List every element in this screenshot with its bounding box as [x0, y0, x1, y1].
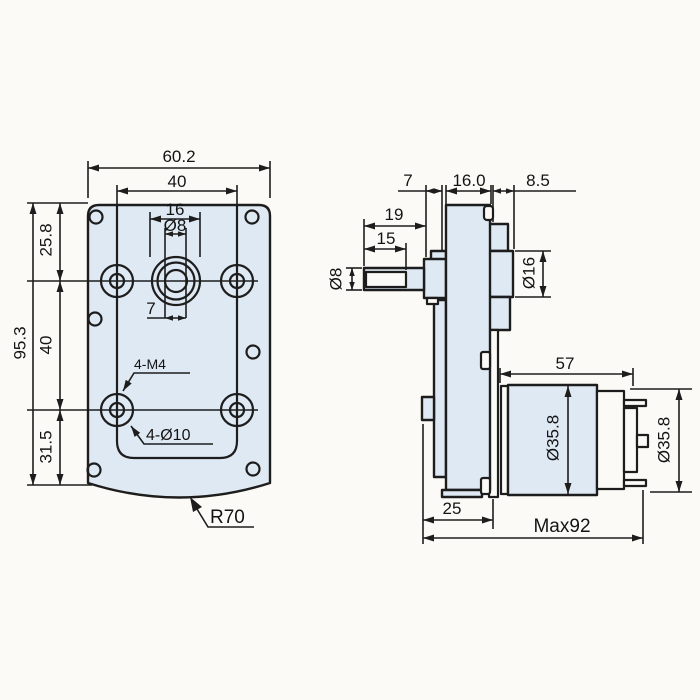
dim-side-base-label: 25 [443, 499, 462, 518]
dim-front-height: 95.3 [10, 203, 33, 485]
label-through-holes-text: 4-Ø10 [146, 427, 191, 444]
side-view: 7 16.0 8.5 19 15 Ø [326, 171, 692, 544]
dim-side-motor-len-label: 57 [556, 354, 575, 373]
rear-step-2 [489, 297, 510, 330]
front-cover-strip [434, 300, 446, 477]
motor-rear-bump [637, 435, 648, 447]
label-bottom-radius: R70 [190, 497, 254, 528]
dim-side-collar-label: 7 [403, 171, 412, 190]
top-tab [484, 206, 493, 220]
dim-front-shaft-dia-label: Ø8 [164, 216, 187, 235]
motor-end-cap [597, 391, 624, 489]
front-plate-outline [88, 205, 270, 498]
dim-side-shaft-len-label: 19 [385, 205, 404, 224]
dim-front-mid-span: 40 [36, 281, 60, 410]
clip-top [481, 352, 490, 369]
gear-motor-drawing: 60.2 40 16 Ø8 7 25.8 [0, 0, 700, 700]
label-tapped-holes-text: 4-M4 [134, 356, 166, 372]
motor-terminal-top [624, 400, 646, 406]
dim-front-width-label: 60.2 [162, 147, 195, 166]
dim-side-motor-dia-label: Ø35.8 [543, 415, 562, 461]
radius-arrow [190, 497, 202, 512]
dim-side-shaft-dia-label: Ø8 [326, 268, 345, 291]
dim-front-bottom-offset: 31.5 [36, 410, 60, 485]
clip-bottom [481, 478, 490, 494]
gearbox-body [446, 205, 490, 490]
dim-front-height-label: 95.3 [10, 326, 29, 359]
motor-terminal-bottom [624, 480, 646, 486]
dim-side-case: 16.0 [446, 171, 491, 204]
dim-side-flat-len-label: 15 [377, 229, 396, 248]
dim-side-flat-len: 15 [364, 229, 406, 270]
dim-front-mid-span-label: 40 [36, 336, 55, 355]
dim-front-top-offset-label: 25.8 [36, 223, 55, 256]
dim-side-motor-len: 57 [500, 354, 633, 386]
dim-side-motor-dia-rear-label: Ø35.8 [654, 417, 673, 463]
technical-drawing-canvas: 60.2 40 16 Ø8 7 25.8 [0, 0, 700, 700]
shaft-flat [366, 272, 406, 287]
label-bottom-radius-text: R70 [210, 507, 245, 528]
dim-front-shaft-flat-label: 7 [146, 299, 155, 318]
output-collar [424, 259, 446, 298]
dim-side-boss-len-label: 8.5 [526, 171, 550, 190]
dim-side-boss-dia-label: Ø16 [519, 257, 538, 289]
front-view: 60.2 40 16 Ø8 7 25.8 [10, 147, 270, 528]
dim-side-case-label: 16.0 [452, 171, 485, 190]
dim-front-hole-span-label: 40 [168, 172, 187, 191]
rear-boss-16 [489, 251, 513, 297]
dim-front-bottom-offset-label: 31.5 [36, 430, 55, 463]
dim-side-overall-label: Max92 [533, 516, 590, 537]
rear-step-1 [489, 224, 508, 251]
gearbox-bottom-lip [442, 490, 482, 497]
dim-side-boss-dia: Ø16 [515, 251, 551, 297]
motor-end-bell [624, 408, 637, 472]
left-boss [422, 397, 434, 420]
collar-tab [427, 298, 438, 304]
dim-side-collar: 7 [398, 171, 442, 257]
dim-front-top-offset: 25.8 [36, 203, 60, 281]
dim-side-shaft-dia: Ø8 [326, 268, 362, 291]
